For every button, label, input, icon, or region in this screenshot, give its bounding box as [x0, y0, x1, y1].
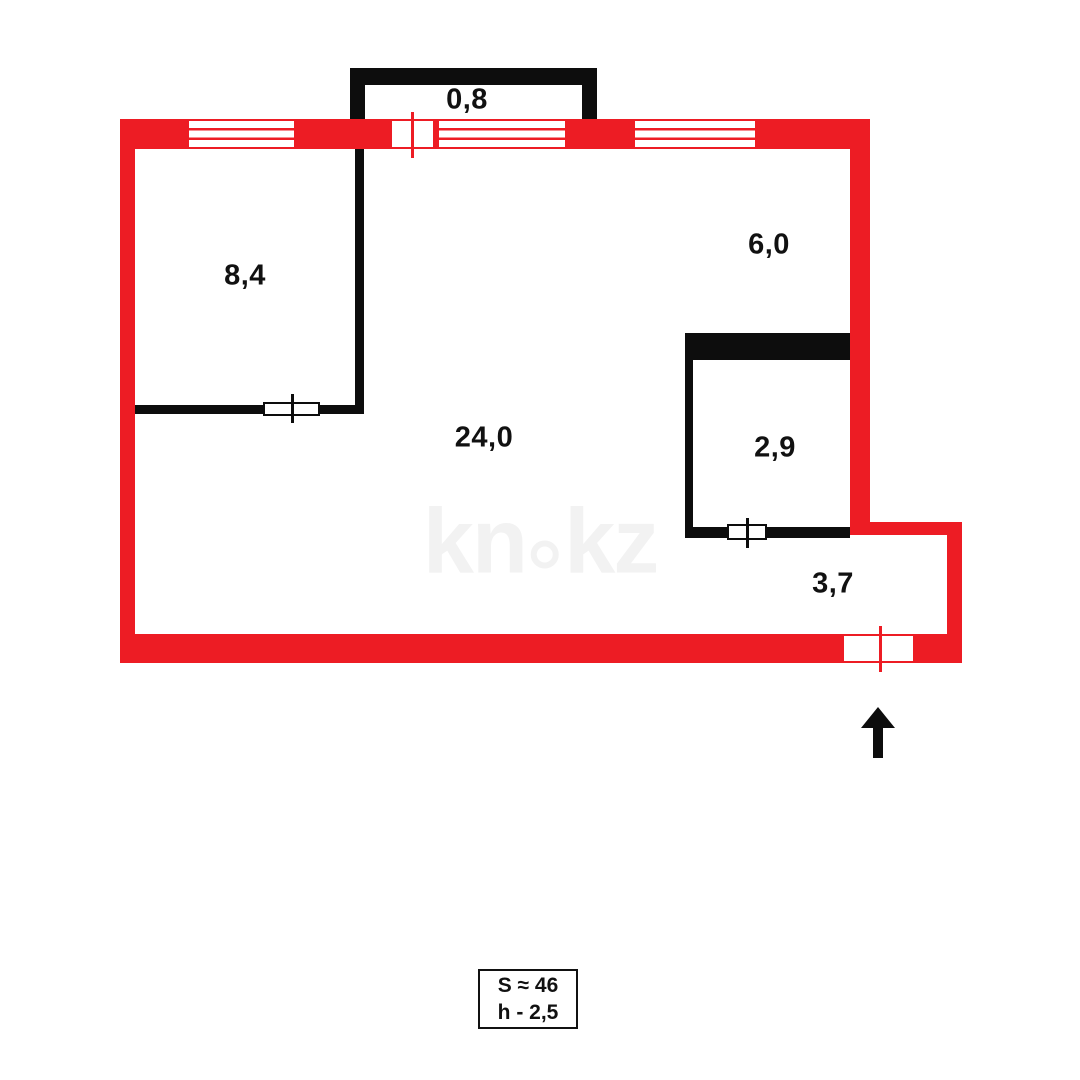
floor-plan: knkz 0,8 8,4 6,0 24,0 2,9 3,7 S ≈ 46 h -… — [0, 0, 1080, 1080]
watermark-text-right: kz — [564, 491, 657, 593]
watermark-text-left: kn — [423, 491, 526, 593]
bathroom-door-tick — [746, 518, 749, 548]
room-area-label-bathroom: 2,9 — [754, 432, 796, 465]
exterior-wall-right-lower — [947, 522, 962, 663]
balcony-wall-left — [350, 85, 365, 119]
entrance-door-tick — [879, 626, 882, 672]
balcony-door-tick — [411, 112, 414, 158]
watermark-dot-icon — [531, 541, 559, 569]
room-area-label-balcony: 0,8 — [446, 84, 488, 117]
entrance-arrow-icon — [860, 706, 896, 758]
bathroom-wall-left — [685, 360, 693, 538]
window-icon-right — [633, 119, 757, 149]
window-icon-left — [187, 119, 296, 149]
exterior-wall-bottom — [120, 634, 962, 663]
kn-kz-watermark: knkz — [423, 490, 658, 595]
exterior-wall-left — [120, 119, 135, 663]
summary-box: S ≈ 46 h - 2,5 — [478, 969, 578, 1029]
room-area-label-bedroom: 8,4 — [224, 260, 266, 293]
room-area-label-hallway: 3,7 — [812, 568, 854, 601]
exterior-wall-jog — [850, 522, 962, 535]
exterior-wall-right-upper — [850, 119, 870, 535]
balcony-wall-top — [350, 68, 597, 85]
bathroom-wall-bottom — [685, 527, 850, 538]
bedroom-wall-right — [355, 149, 364, 413]
bedroom-wall-bottom — [135, 405, 364, 414]
balcony-wall-right — [582, 85, 597, 119]
total-area-text: S ≈ 46 — [498, 972, 559, 999]
bathroom-wall-top — [685, 333, 850, 360]
bedroom-door-tick — [291, 394, 294, 423]
room-area-label-living-room: 24,0 — [455, 422, 513, 455]
window-icon-balcony — [437, 119, 567, 149]
room-area-label-kitchen: 6,0 — [748, 229, 790, 262]
ceiling-height-text: h - 2,5 — [498, 999, 559, 1026]
